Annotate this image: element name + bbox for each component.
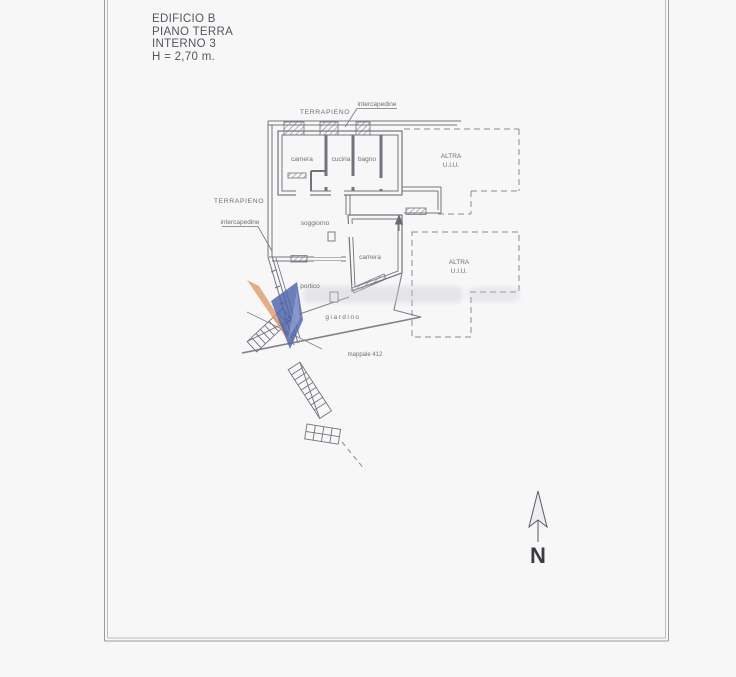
north-label: N [530, 543, 546, 568]
label-terrapieno-top: TERRAPIENO [300, 109, 350, 116]
callout-leaders [222, 109, 397, 252]
entry-walls [402, 187, 441, 215]
label-intercapedine-top: intercapedine [357, 101, 396, 108]
label-terrapieno-left: TERRAPIENO [214, 198, 264, 205]
north-arrow-icon [529, 491, 547, 542]
room-label-portico: portico [300, 283, 320, 290]
label-altra-uiu-2-line1: ALTRA [449, 259, 470, 266]
watermark-text-ghost-2 [468, 287, 520, 302]
label-altra-uiu-2-line2: U.I.U. [451, 268, 468, 275]
apartment-walls [278, 131, 402, 196]
soggiorno-walls [269, 195, 350, 263]
watermark-text-ghost [303, 286, 463, 303]
watermark [247, 280, 520, 349]
room-label-giardino: giardino [325, 314, 360, 321]
sheet-border [105, 0, 669, 641]
altra-uiu-2-boundary [412, 232, 519, 337]
room-label-soggiorno: soggiorno [301, 220, 330, 227]
scanned-floorplan-page: EDIFICIO B PIANO TERRA INTERNO 3 H = 2,7… [0, 0, 736, 677]
top-windows [284, 122, 370, 135]
room-label-camera2: camera [359, 254, 381, 261]
room-label-bagno: bagno [358, 156, 376, 163]
label-intercapedine-left: intercapedine [220, 219, 259, 226]
label-altra-uiu-1-line1: ALTRA [441, 153, 462, 160]
label-altra-uiu-1-line2: U.I.U. [443, 162, 460, 169]
room-label-camera1: camera [291, 156, 313, 163]
dashed-path-line [342, 442, 365, 470]
altra-uiu-1-boundary [404, 129, 519, 214]
grid-structure [305, 424, 341, 444]
label-mappale: mappale 412 [348, 352, 383, 358]
stairs-2 [288, 362, 331, 418]
floorplan-drawing: TERRAPIENO intercapedine TERRAPIENO inte… [0, 0, 736, 677]
room-label-cucina: cucina [332, 156, 351, 163]
